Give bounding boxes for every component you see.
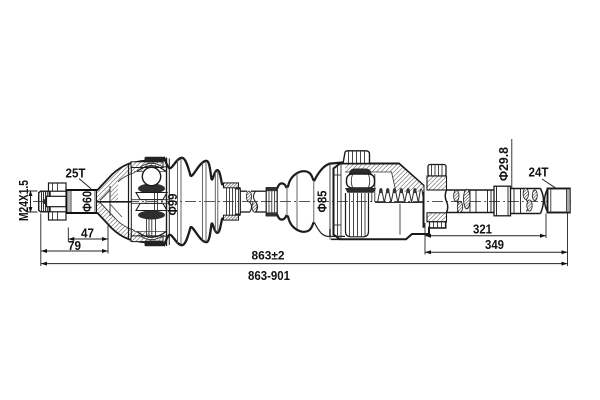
svg-text:863±2: 863±2	[252, 249, 285, 263]
svg-text:321: 321	[473, 223, 492, 237]
svg-text:79: 79	[68, 239, 81, 253]
svg-text:47: 47	[81, 226, 94, 240]
svg-text:25T: 25T	[66, 167, 86, 181]
svg-text:24T: 24T	[529, 166, 549, 180]
svg-text:863-901: 863-901	[248, 269, 290, 283]
svg-text:Φ29.8: Φ29.8	[497, 147, 511, 181]
svg-text:Φ85: Φ85	[315, 191, 330, 213]
svg-text:349: 349	[485, 238, 504, 252]
svg-text:Φ60: Φ60	[80, 191, 95, 212]
svg-text:M24X1.5: M24X1.5	[16, 180, 31, 221]
